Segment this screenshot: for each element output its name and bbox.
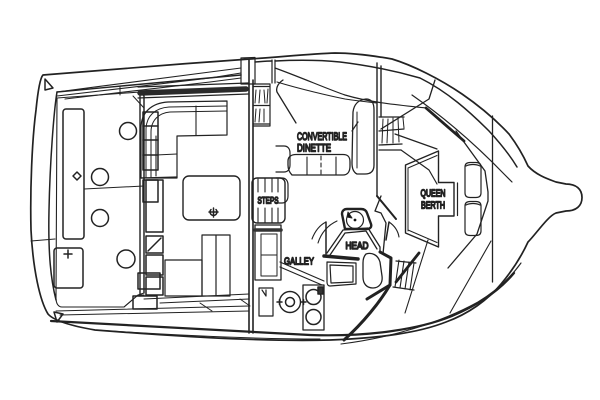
svg-text:STEPS: STEPS bbox=[258, 196, 279, 207]
svg-text:HEAD: HEAD bbox=[346, 241, 369, 252]
svg-text:BERTH: BERTH bbox=[421, 201, 445, 212]
svg-text:DINETTE: DINETTE bbox=[297, 143, 331, 155]
svg-text:QUEEN: QUEEN bbox=[421, 189, 446, 200]
svg-text:CONVERTIBLE: CONVERTIBLE bbox=[297, 131, 347, 143]
